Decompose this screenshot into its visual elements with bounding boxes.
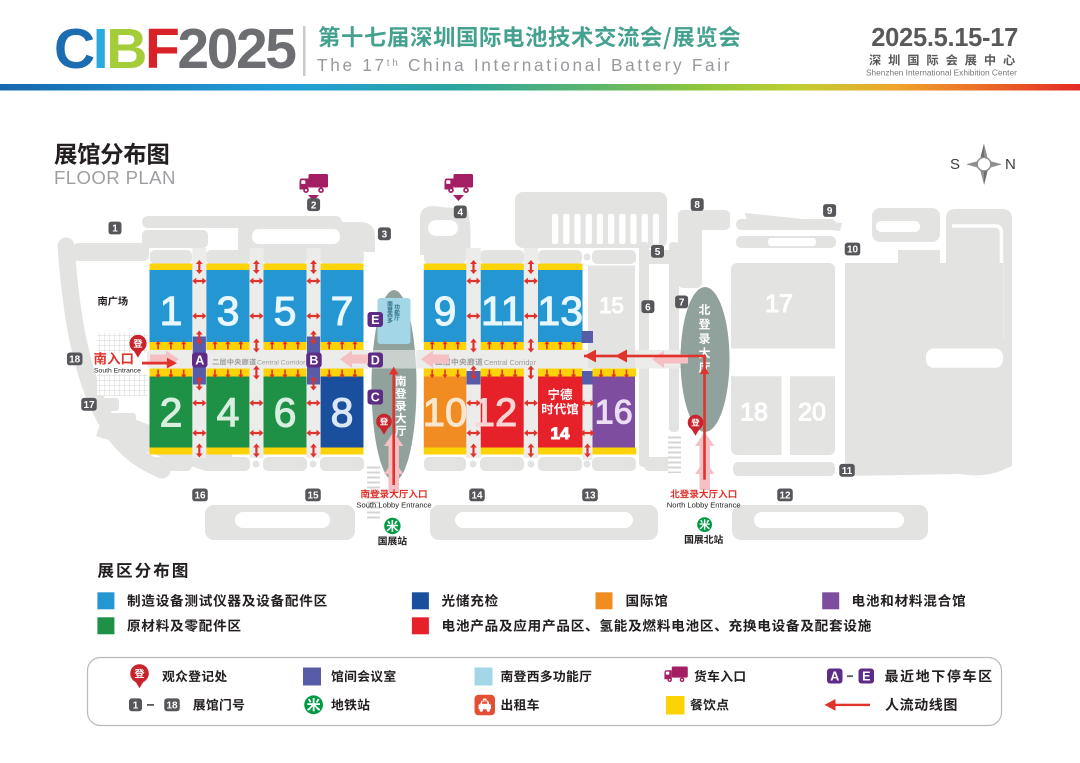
svg-text:6: 6 — [274, 389, 297, 435]
svg-text:2: 2 — [311, 200, 317, 211]
svg-text:18: 18 — [166, 700, 178, 711]
svg-text:20: 20 — [798, 399, 826, 427]
svg-text:15: 15 — [307, 491, 319, 502]
svg-text:5: 5 — [655, 247, 661, 258]
svg-text:South Entrance: South Entrance — [94, 368, 141, 375]
svg-text:A: A — [195, 354, 204, 368]
svg-text:14: 14 — [471, 491, 483, 502]
svg-text:12: 12 — [473, 391, 518, 435]
svg-text:Central Corridor: Central Corridor — [257, 360, 306, 367]
svg-text:17: 17 — [83, 400, 95, 411]
svg-text:16: 16 — [194, 491, 206, 502]
svg-text:8: 8 — [694, 200, 700, 211]
svg-text:3: 3 — [217, 288, 240, 334]
svg-text:6: 6 — [645, 302, 651, 313]
svg-text:11: 11 — [481, 288, 524, 334]
svg-text:B: B — [309, 354, 318, 368]
svg-text:7: 7 — [679, 298, 685, 309]
svg-text:12: 12 — [779, 491, 791, 502]
svg-text:5: 5 — [274, 288, 297, 334]
svg-text:2: 2 — [160, 389, 183, 435]
svg-text:14: 14 — [551, 424, 570, 443]
svg-text:E: E — [371, 313, 379, 327]
svg-text:CIBF2025: CIBF2025 — [54, 17, 296, 81]
svg-text:8: 8 — [331, 389, 354, 435]
svg-text:11: 11 — [842, 466, 853, 477]
svg-text:13: 13 — [584, 491, 596, 502]
svg-text:9: 9 — [827, 206, 833, 217]
svg-text:S: S — [950, 156, 960, 173]
svg-text:1: 1 — [112, 224, 118, 235]
svg-text:3: 3 — [382, 229, 388, 240]
svg-text:North Lobby Entrance: North Lobby Entrance — [667, 501, 741, 510]
svg-text:1: 1 — [133, 700, 139, 711]
svg-text:C: C — [371, 391, 380, 405]
svg-text:Central Corridor: Central Corridor — [484, 358, 536, 367]
svg-text:9: 9 — [434, 288, 457, 334]
svg-text:10: 10 — [423, 391, 468, 435]
svg-text:E: E — [862, 670, 870, 684]
svg-text:South Lobby Entrance: South Lobby Entrance — [356, 501, 431, 510]
svg-text:18: 18 — [740, 399, 768, 427]
svg-text:7: 7 — [331, 288, 354, 334]
svg-text:10: 10 — [847, 245, 859, 256]
svg-text:16: 16 — [595, 394, 633, 432]
svg-text:D: D — [371, 354, 380, 368]
svg-text:1: 1 — [160, 288, 183, 334]
svg-text:2025.5.15-17: 2025.5.15-17 — [871, 24, 1018, 52]
svg-text:18: 18 — [69, 355, 81, 366]
svg-text:17: 17 — [765, 290, 793, 318]
svg-text:4: 4 — [458, 208, 464, 219]
svg-text:The 17th China International B: The 17th China International Battery Fai… — [317, 55, 732, 75]
svg-text:N: N — [1005, 156, 1016, 173]
svg-text:13: 13 — [537, 288, 583, 334]
svg-text:FLOOR PLAN: FLOOR PLAN — [54, 167, 176, 188]
svg-text:4: 4 — [217, 389, 240, 435]
svg-text:A: A — [830, 670, 839, 684]
svg-text:15: 15 — [599, 293, 623, 318]
svg-text:Shenzhen International Exhibit: Shenzhen International Exhibition Center — [866, 68, 1017, 78]
